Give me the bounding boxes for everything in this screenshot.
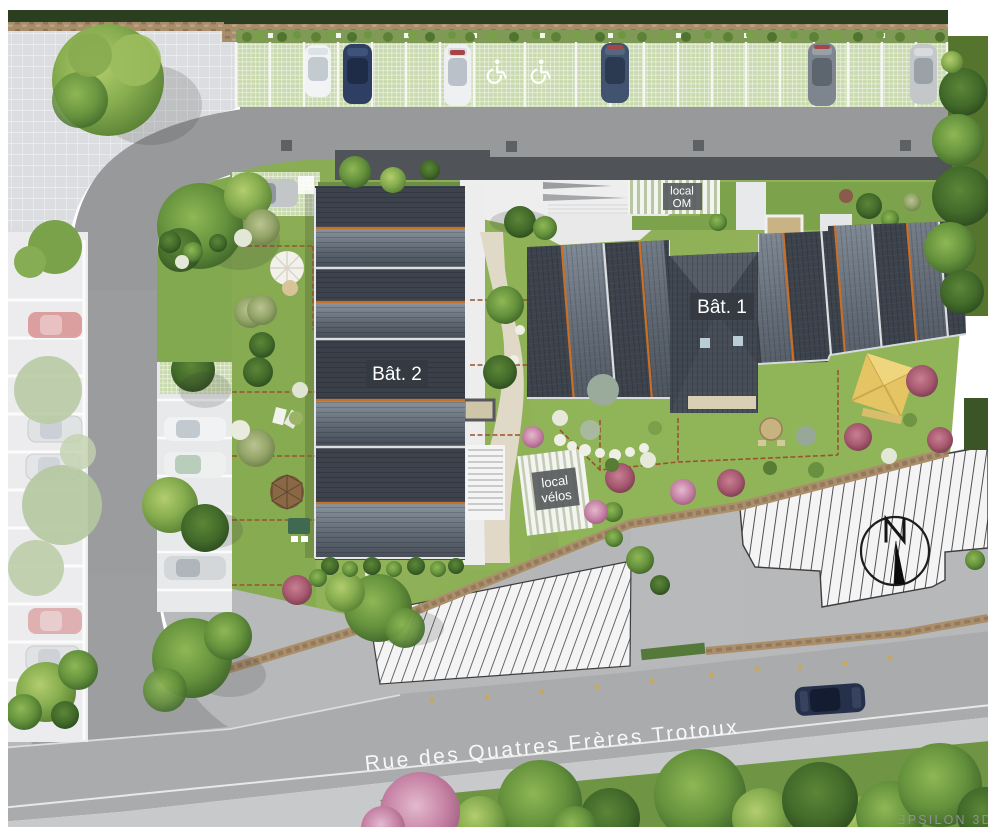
svg-text:ƎPSILON 3D: ƎPSILON 3D [897, 813, 993, 827]
svg-text:OM: OM [673, 198, 692, 210]
svg-text:Bât. 1: Bât. 1 [697, 297, 747, 318]
svg-text:Bât. 2: Bât. 2 [372, 364, 422, 385]
svg-text:local: local [670, 185, 694, 197]
